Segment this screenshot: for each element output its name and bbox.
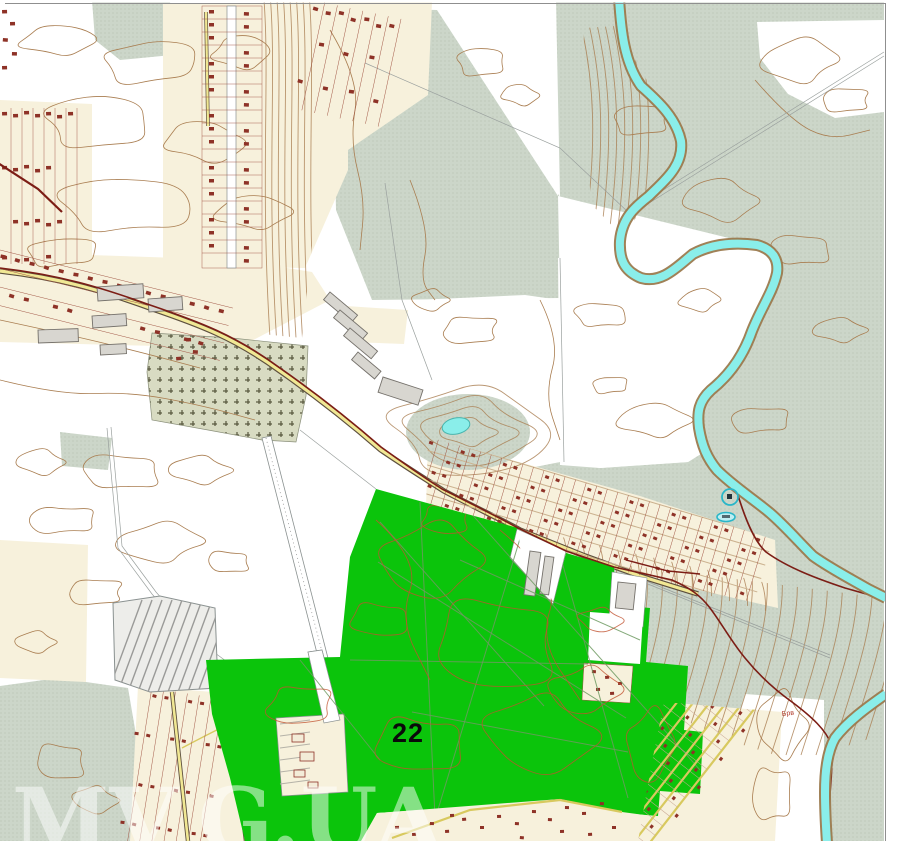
watermark-text-right: G.UA: [198, 768, 445, 841]
watermark: MV G.UA: [12, 768, 445, 841]
watermark-text-left: MV: [12, 768, 179, 841]
map-viewport[interactable]: 22 Брв MV G.UA: [0, 0, 900, 841]
map-canvas[interactable]: 22 Брв MV G.UA: [0, 0, 900, 841]
micro-area-label: Брв: [781, 710, 794, 718]
parcel-number-label: 22: [392, 718, 424, 748]
